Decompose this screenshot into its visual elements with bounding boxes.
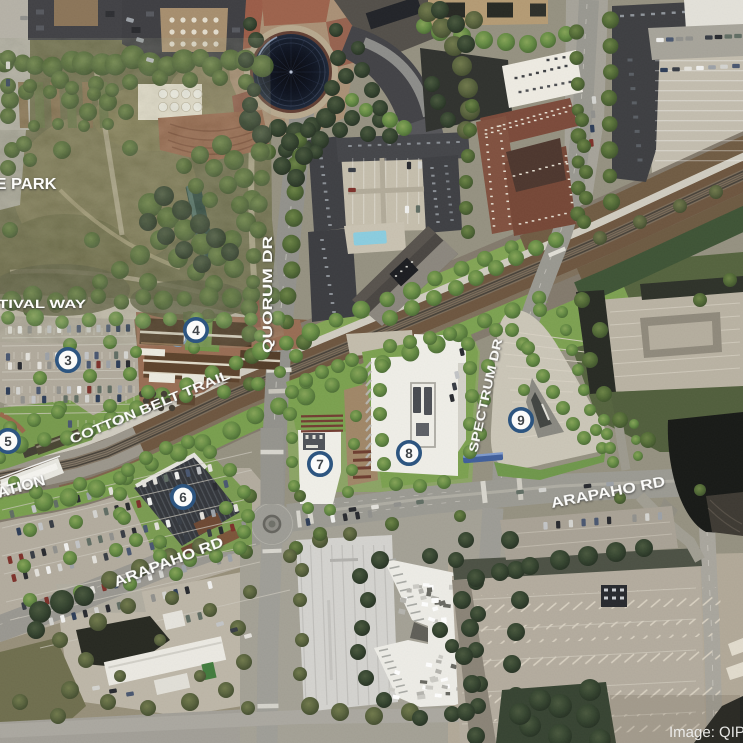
- svg-text:TIVAL WAY: TIVAL WAY: [0, 297, 86, 311]
- svg-text:8: 8: [405, 446, 413, 461]
- svg-text:Image: QIP: Image: QIP: [669, 724, 743, 741]
- svg-text:7: 7: [316, 457, 324, 472]
- svg-text:4: 4: [192, 323, 200, 338]
- svg-text:3: 3: [64, 353, 72, 368]
- svg-text:E PARK: E PARK: [0, 176, 57, 193]
- svg-text:QUORUM DR: QUORUM DR: [260, 236, 275, 353]
- svg-text:9: 9: [517, 413, 525, 428]
- svg-text:6: 6: [179, 490, 187, 505]
- svg-text:5: 5: [4, 434, 12, 449]
